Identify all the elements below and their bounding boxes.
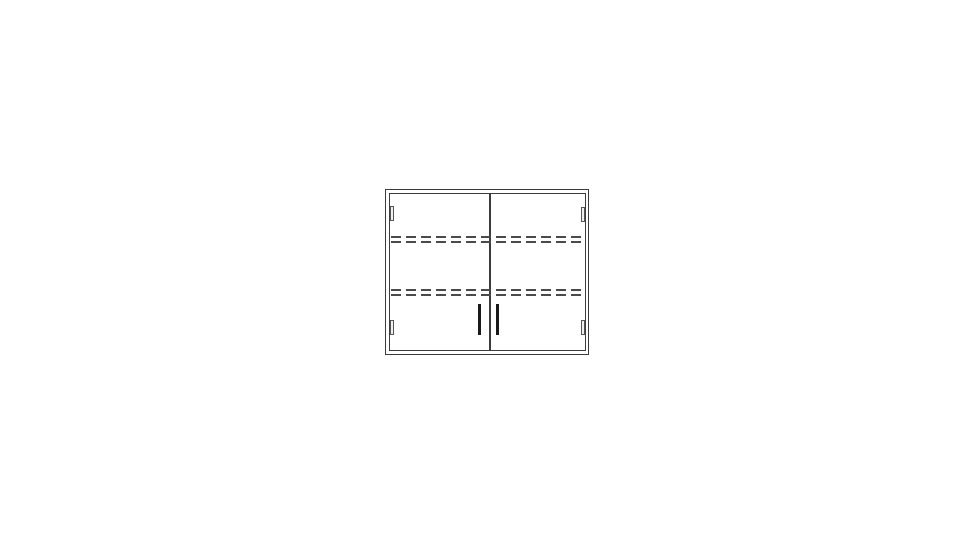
hinge-bottom-right (581, 320, 585, 335)
hinge-bottom-left (390, 320, 394, 335)
right-door-handle (496, 304, 499, 335)
hinge-top-left (390, 206, 394, 221)
shelf-2-hidden-line-top (391, 289, 584, 291)
hinge-top-right (581, 207, 585, 222)
shelf-1-hidden-line-bottom (391, 241, 584, 243)
shelf-1-hidden-line-top (391, 236, 584, 238)
left-door-handle (478, 304, 481, 335)
door-split-line (489, 193, 491, 351)
page-canvas: Double-door cabinet, front elevation lin… (0, 0, 978, 550)
cabinet-door-outline (389, 193, 586, 351)
shelf-2-hidden-line-bottom (391, 294, 584, 296)
